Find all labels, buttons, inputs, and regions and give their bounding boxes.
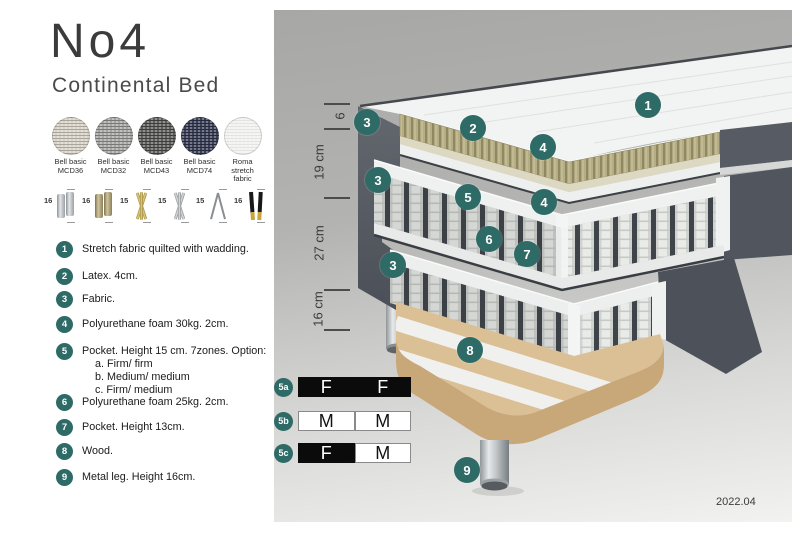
callout-badge-4: 4 xyxy=(530,134,556,160)
leg-height-label: 16 xyxy=(44,196,52,205)
leg-option-block-black-gold[interactable]: 16 xyxy=(232,186,270,228)
leg-icon-cylinder-brass xyxy=(93,189,115,223)
dimension-label: 19 cm xyxy=(312,144,327,179)
part-description-text: Metal leg. Height 16cm. xyxy=(82,471,195,484)
firmness-row-5b: 5bMM xyxy=(274,411,411,431)
leg-glyph-part xyxy=(66,192,74,216)
callout-badge-4: 4 xyxy=(531,189,557,215)
leg-options-row: 161615151516 xyxy=(42,186,270,228)
leg-glyph-part xyxy=(95,194,103,218)
part-description: Stretch fabric quilted with wadding. xyxy=(82,241,249,256)
part-description: Polyurethane foam 30kg. 2cm. xyxy=(82,316,228,331)
part-description-text: Pocket. Height 13cm. xyxy=(82,421,185,434)
part-description: Fabric. xyxy=(82,291,115,306)
leg-height-label: 15 xyxy=(196,196,204,205)
leg-option-cylinder-silver[interactable]: 16 xyxy=(42,186,80,228)
part-number-badge: 8 xyxy=(56,443,73,460)
part-description-text: Wood. xyxy=(82,445,113,458)
part-number-badge: 6 xyxy=(56,394,73,411)
firmness-bar: FF xyxy=(298,377,411,397)
measure-dash-icon xyxy=(143,222,151,223)
part-item-5: 5Pocket. Height 15 cm. 7zones. Option:a.… xyxy=(56,343,266,397)
firmness-row-5a: 5aFF xyxy=(274,377,411,397)
callout-badge-9: 9 xyxy=(454,457,480,483)
part-sub-option: b. Medium/ medium xyxy=(95,371,266,384)
version-label: 2022.04 xyxy=(716,496,756,508)
part-item-9: 9Metal leg. Height 16cm. xyxy=(56,469,195,486)
part-description-text: Polyurethane foam 25kg. 2cm. xyxy=(82,396,228,409)
product-title: No4 xyxy=(50,14,150,69)
leg-height-label: 15 xyxy=(120,196,128,205)
dimension-label: 6 xyxy=(333,112,348,119)
diagram-panel: 619 cm27 cm16 cm 123435467389 5aFF5bMM5c… xyxy=(274,10,792,522)
fabric-swatch-mcd36[interactable]: Bell basicMCD36 xyxy=(50,117,91,184)
part-number-badge: 5 xyxy=(56,343,73,360)
fabric-swatch-circle[interactable] xyxy=(52,117,90,155)
firmness-badge: 5a xyxy=(274,378,293,397)
part-number-badge: 7 xyxy=(56,419,73,436)
leg-glyph-part xyxy=(257,192,262,220)
callout-badge-8: 8 xyxy=(457,337,483,363)
fabric-swatch-mcd43[interactable]: Bell basicMCD43 xyxy=(136,117,177,184)
firmness-cell: M xyxy=(355,411,412,431)
firmness-badge: 5c xyxy=(274,444,293,463)
fabric-name-line2: MCD36 xyxy=(50,167,91,176)
part-description: Latex. 4cm. xyxy=(82,268,138,283)
fabric-swatch-label: Bell basicMCD36 xyxy=(50,158,91,175)
fabric-swatch-label: Bell basicMCD32 xyxy=(93,158,134,175)
measure-dash-icon xyxy=(257,222,265,223)
firmness-row-5c: 5cFM xyxy=(274,443,411,463)
part-description: Pocket. Height 13cm. xyxy=(82,419,185,434)
callout-badge-2: 2 xyxy=(460,115,486,141)
callout-badge-3: 3 xyxy=(354,109,380,135)
fabric-swatch-circle[interactable] xyxy=(224,117,262,155)
part-description-text: Stretch fabric quilted with wadding. xyxy=(82,243,249,256)
measure-dash-icon xyxy=(143,189,151,190)
fabric-swatch-mcd74[interactable]: Bell basicMCD74 xyxy=(179,117,220,184)
part-item-2: 2Latex. 4cm. xyxy=(56,268,138,285)
leg-icon-block-black-gold xyxy=(245,189,267,223)
measure-dash-icon xyxy=(181,189,189,190)
part-number-badge: 9 xyxy=(56,469,73,486)
fabric-swatch-row: Bell basicMCD36Bell basicMCD32Bell basic… xyxy=(50,117,263,184)
leg-glyph-part xyxy=(210,193,219,220)
part-description-text: Fabric. xyxy=(82,293,115,306)
part-description: Metal leg. Height 16cm. xyxy=(82,469,195,484)
ruler-tick xyxy=(324,197,350,199)
part-item-7: 7Pocket. Height 13cm. xyxy=(56,419,185,436)
firmness-cell: M xyxy=(355,443,412,463)
measure-dash-icon xyxy=(219,222,227,223)
leg-option-twist-gold[interactable]: 15 xyxy=(118,186,156,228)
leg-option-twist-silver[interactable]: 15 xyxy=(156,186,194,228)
fabric-swatch-stretch-fabric[interactable]: Romastretch fabric xyxy=(222,117,263,184)
fabric-swatch-circle[interactable] xyxy=(138,117,176,155)
part-description-text: Latex. 4cm. xyxy=(82,270,138,283)
leg-glyph-part xyxy=(104,192,112,216)
leg-height-label: 15 xyxy=(158,196,166,205)
firmness-bar: FM xyxy=(298,443,411,463)
leg-glyph-part xyxy=(217,193,226,220)
measure-dash-icon xyxy=(219,189,227,190)
ruler-tick xyxy=(324,329,350,331)
fabric-swatch-label: Bell basicMCD43 xyxy=(136,158,177,175)
fabric-swatch-mcd32[interactable]: Bell basicMCD32 xyxy=(93,117,134,184)
leg-icon-twist-silver xyxy=(169,189,191,223)
callout-badge-6: 6 xyxy=(476,226,502,252)
part-description: Polyurethane foam 25kg. 2cm. xyxy=(82,394,228,409)
measure-dash-icon xyxy=(105,189,113,190)
fabric-swatch-label: Romastretch fabric xyxy=(222,158,263,184)
firmness-badge: 5b xyxy=(274,412,293,431)
leg-glyph-part xyxy=(178,192,181,220)
part-item-8: 8Wood. xyxy=(56,443,113,460)
part-item-4: 4Polyurethane foam 30kg. 2cm. xyxy=(56,316,228,333)
measure-dash-icon xyxy=(181,222,189,223)
leg-icon-hairpin xyxy=(207,189,229,223)
leg-icon-cylinder-silver xyxy=(55,189,77,223)
firmness-cell: M xyxy=(298,411,355,431)
fabric-name-line2: MCD32 xyxy=(93,167,134,176)
product-subtitle: Continental Bed xyxy=(52,74,219,98)
callout-badge-3: 3 xyxy=(380,252,406,278)
measure-dash-icon xyxy=(67,189,75,190)
firmness-cell: F xyxy=(298,377,355,397)
part-item-6: 6Polyurethane foam 25kg. 2cm. xyxy=(56,394,228,411)
leg-glyph-part xyxy=(249,192,255,220)
callout-badge-7: 7 xyxy=(514,241,540,267)
callout-badge-1: 1 xyxy=(635,92,661,118)
dimension-label: 27 cm xyxy=(312,225,327,260)
ruler-tick xyxy=(324,289,350,291)
part-number-badge: 1 xyxy=(56,241,73,258)
leg-option-cylinder-brass[interactable]: 16 xyxy=(80,186,118,228)
leg-icon-twist-gold xyxy=(131,189,153,223)
measure-dash-icon xyxy=(105,222,113,223)
part-number-badge: 4 xyxy=(56,316,73,333)
part-description-text: Pocket. Height 15 cm. 7zones. Option: xyxy=(82,345,266,358)
leg-height-label: 16 xyxy=(82,196,90,205)
part-item-3: 3Fabric. xyxy=(56,291,115,308)
fabric-name-line2: stretch fabric xyxy=(222,167,263,184)
fabric-swatch-circle[interactable] xyxy=(181,117,219,155)
fabric-name-line2: MCD43 xyxy=(136,167,177,176)
part-item-1: 1Stretch fabric quilted with wadding. xyxy=(56,241,249,258)
part-description-text: Polyurethane foam 30kg. 2cm. xyxy=(82,318,228,331)
part-number-badge: 3 xyxy=(56,291,73,308)
firmness-cell: F xyxy=(298,443,355,463)
fabric-name-line2: MCD74 xyxy=(179,167,220,176)
ruler-tick xyxy=(324,128,350,130)
leg-option-hairpin[interactable]: 15 xyxy=(194,186,232,228)
callout-badge-3: 3 xyxy=(365,167,391,193)
fabric-swatch-label: Bell basicMCD74 xyxy=(179,158,220,175)
leg-glyph-part xyxy=(140,192,143,220)
measure-dash-icon xyxy=(257,189,265,190)
leg-height-label: 16 xyxy=(234,196,242,205)
part-description: Wood. xyxy=(82,443,113,458)
product-sheet: No4 Continental Bed Bell basicMCD36Bell … xyxy=(0,0,800,533)
part-sub-option: a. Firm/ firm xyxy=(95,358,266,371)
ruler-tick xyxy=(324,103,350,105)
part-description: Pocket. Height 15 cm. 7zones. Option:a. … xyxy=(82,343,266,397)
measure-dash-icon xyxy=(67,222,75,223)
part-number-badge: 2 xyxy=(56,268,73,285)
firmness-bar: MM xyxy=(298,411,411,431)
leg-glyph-part xyxy=(57,194,65,218)
fabric-swatch-circle[interactable] xyxy=(95,117,133,155)
callout-badge-5: 5 xyxy=(455,184,481,210)
dimension-label: 16 cm xyxy=(311,291,326,326)
firmness-cell: F xyxy=(355,377,412,397)
